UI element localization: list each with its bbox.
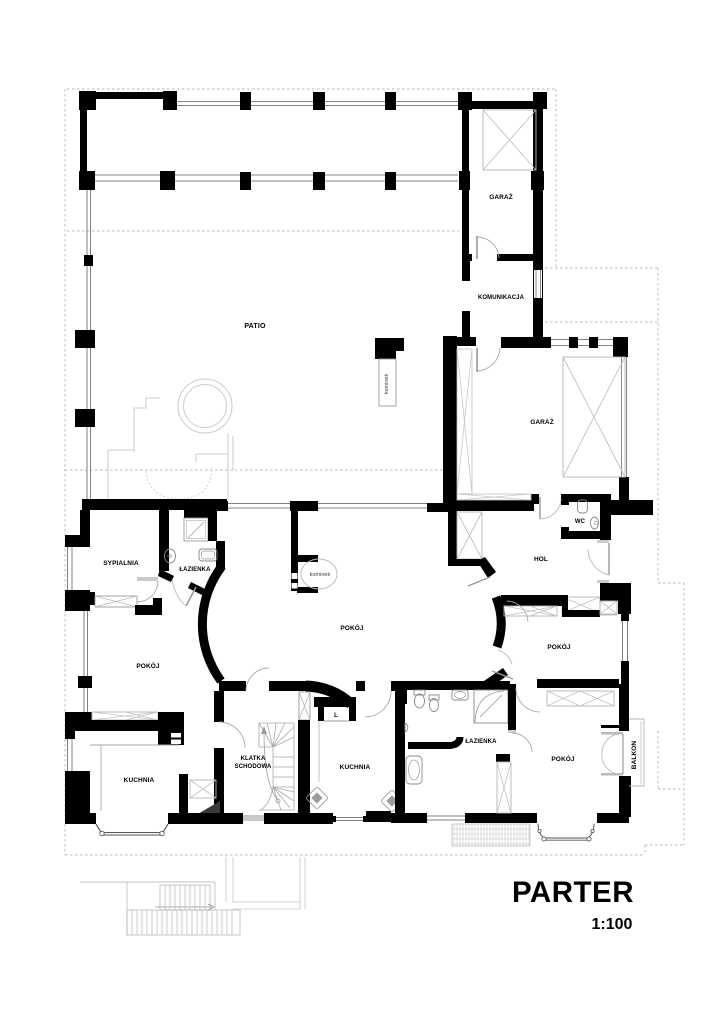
svg-text:ŁAZIENKA: ŁAZIENKA (179, 567, 211, 573)
svg-text:GARAŻ: GARAŻ (489, 193, 513, 201)
svg-text:KOMUNIKACJA: KOMUNIKACJA (478, 295, 525, 301)
svg-text:POKÓJ: POKÓJ (340, 623, 364, 632)
svg-text:POKÓJ: POKÓJ (551, 754, 575, 763)
svg-text:PATIO: PATIO (244, 323, 266, 330)
svg-text:SCHODOWA: SCHODOWA (235, 764, 272, 770)
svg-text:kominek: kominek (384, 374, 390, 395)
svg-text:KUCHNIA: KUCHNIA (340, 764, 371, 771)
svg-text:HOL: HOL (534, 556, 548, 563)
svg-text:SYPIALNIA: SYPIALNIA (103, 560, 139, 567)
svg-text:1:100: 1:100 (592, 916, 633, 933)
svg-text:KUCHNIA: KUCHNIA (124, 777, 155, 784)
svg-text:PARTER: PARTER (512, 876, 634, 909)
svg-text:POKÓJ: POKÓJ (547, 642, 571, 651)
svg-text:KLATKA: KLATKA (241, 756, 266, 762)
svg-text:BALKON: BALKON (631, 741, 638, 770)
svg-text:GARAŻ: GARAŻ (530, 418, 554, 426)
svg-text:ŁAZIENKA: ŁAZIENKA (465, 739, 497, 745)
svg-text:L: L (334, 713, 338, 719)
svg-text:WC: WC (575, 519, 586, 525)
svg-text:kominek: kominek (310, 572, 331, 578)
svg-text:POKÓJ: POKÓJ (136, 661, 160, 670)
